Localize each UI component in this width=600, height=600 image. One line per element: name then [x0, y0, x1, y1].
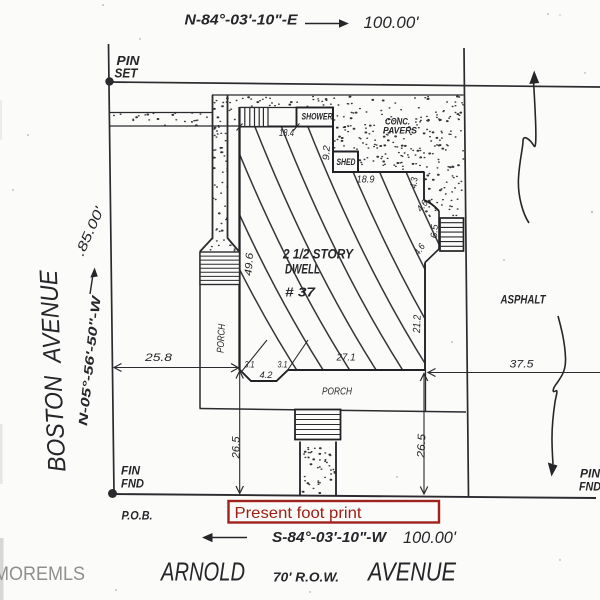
svg-text:PORCH: PORCH: [322, 386, 352, 398]
svg-text:N-84°-03'-10"-E: N-84°-03'-10"-E: [185, 13, 299, 29]
svg-text:FIN: FIN: [121, 464, 141, 478]
svg-text:ARNOLD: ARNOLD: [159, 557, 245, 587]
svg-text:4.3: 4.3: [409, 176, 421, 189]
svg-text:P.O.B.: P.O.B.: [122, 511, 153, 523]
svg-text:PIN: PIN: [580, 467, 600, 481]
svg-text:MOREMLS: MOREMLS: [0, 564, 85, 585]
svg-text:2 1/2 STORY: 2 1/2 STORY: [282, 247, 355, 262]
svg-text:18.9: 18.9: [357, 175, 375, 186]
svg-text:26.5: 26.5: [415, 433, 428, 459]
svg-text:37.5: 37.5: [510, 359, 535, 371]
svg-text:FND: FND: [579, 480, 600, 494]
svg-text:AVENUE: AVENUE: [366, 557, 456, 587]
svg-text:9.2: 9.2: [321, 144, 333, 160]
svg-text:Present foot print: Present foot print: [235, 505, 363, 522]
svg-text:18.4: 18.4: [279, 128, 294, 139]
svg-text:SET: SET: [115, 67, 139, 81]
svg-text:PORCH: PORCH: [216, 323, 229, 353]
svg-text:SHED: SHED: [337, 157, 356, 167]
svg-text:3.1: 3.1: [278, 360, 288, 371]
svg-text:DWELL: DWELL: [285, 262, 320, 277]
svg-text:100.00': 100.00': [403, 528, 457, 547]
svg-text:21.2: 21.2: [411, 315, 424, 334]
svg-text:25.8: 25.8: [144, 352, 173, 364]
svg-text:S-84°-03'-10"-W: S-84°-03'-10"-W: [272, 529, 388, 546]
svg-text:4.2: 4.2: [260, 370, 274, 381]
svg-text:26.5: 26.5: [231, 436, 243, 460]
svg-text:SHOWER: SHOWER: [302, 112, 333, 122]
svg-text:27.1: 27.1: [336, 352, 356, 364]
svg-text:PAVERS: PAVERS: [383, 126, 418, 137]
svg-text:ASPHALT: ASPHALT: [500, 295, 547, 307]
svg-text:# 37: # 37: [285, 286, 316, 300]
svg-text:6.5: 6.5: [429, 223, 441, 238]
svg-text:70' R.O.W.: 70' R.O.W.: [273, 571, 339, 585]
svg-text:100.00': 100.00': [364, 13, 420, 32]
svg-text:FND: FND: [121, 477, 144, 491]
svg-text:49.6: 49.6: [243, 252, 257, 276]
